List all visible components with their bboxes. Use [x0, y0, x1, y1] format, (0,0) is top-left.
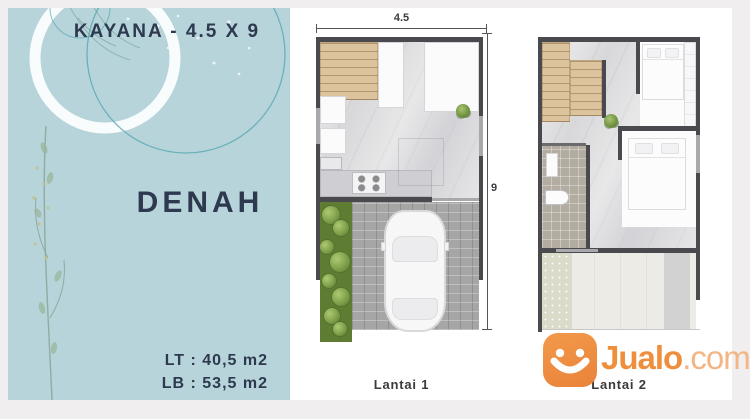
sink-icon	[546, 153, 558, 177]
wall	[316, 202, 320, 278]
wall	[538, 37, 700, 42]
bathroom-wall	[542, 143, 586, 146]
balcony-strip	[664, 253, 690, 329]
toilet-icon	[545, 190, 569, 205]
bathroom-wall	[586, 145, 590, 249]
wall	[696, 252, 700, 300]
window	[316, 108, 320, 144]
wall	[636, 42, 640, 94]
pillow	[665, 48, 679, 58]
window	[696, 135, 700, 173]
denah-heading: DENAH	[100, 186, 290, 220]
wardrobe	[684, 42, 696, 128]
fixture-block	[320, 96, 346, 124]
spec-lb: LB : 53,5 m2	[100, 375, 268, 393]
grass-strip	[320, 202, 352, 342]
bush-icon	[320, 240, 334, 254]
staircase-icon	[570, 60, 602, 116]
bush-icon	[322, 274, 336, 288]
balcony-planter	[542, 253, 572, 329]
smiley-face-icon	[543, 333, 597, 387]
window	[479, 116, 483, 156]
sliding-door	[432, 198, 479, 201]
dimension-line-width	[316, 28, 487, 29]
jualo-smiley-logo	[543, 333, 597, 387]
car-windshield	[392, 236, 438, 262]
plant-icon	[456, 104, 470, 118]
dim-tick	[486, 24, 487, 33]
dim-tick	[482, 329, 492, 330]
bush-icon	[330, 252, 350, 272]
dimension-label-width: 4.5	[316, 12, 487, 24]
bench-seat	[424, 42, 479, 112]
plan-edge	[542, 329, 700, 330]
page-title: KAYANA - 4.5 X 9	[58, 21, 276, 43]
wall	[479, 202, 483, 278]
car-rear-window	[392, 298, 438, 320]
spec-lt: LT : 40,5 m2	[100, 352, 268, 370]
bush-icon	[332, 288, 350, 306]
wall	[618, 126, 700, 131]
dimension-label-height: 9	[491, 182, 497, 194]
dining-table-outline	[398, 138, 444, 186]
bush-icon	[333, 220, 349, 236]
bed-icon	[628, 138, 686, 210]
dim-tick	[316, 24, 317, 33]
kitchen-sink-icon	[320, 157, 342, 170]
pillow	[647, 48, 661, 58]
plan-label-lantai-1: Lantai 1	[316, 377, 487, 392]
bush-icon	[333, 322, 347, 336]
wall	[618, 126, 622, 160]
fixture-block	[320, 128, 346, 154]
car-mirror	[381, 242, 386, 251]
brand-name: Jualo	[601, 339, 682, 376]
pillow	[661, 143, 679, 154]
staircase-icon	[542, 42, 570, 122]
wall	[316, 37, 483, 42]
bed-icon	[642, 44, 684, 100]
jualo-brand-text: Jualo.com	[601, 334, 750, 382]
car-topview-icon	[384, 210, 446, 332]
brand-suffix: .com	[682, 339, 750, 376]
stove-icon	[352, 172, 386, 194]
sliding-door	[556, 249, 598, 252]
dimension-line-height	[487, 33, 488, 330]
cabinet	[378, 42, 404, 108]
car-mirror	[444, 242, 449, 251]
listing-image: KAYANA - 4.5 X 9 DENAH LT : 40,5 m2 LB :…	[0, 0, 750, 419]
pillow	[635, 143, 653, 154]
plant-icon	[604, 114, 618, 128]
staircase-icon	[320, 42, 378, 100]
sidebar: KAYANA - 4.5 X 9 DENAH LT : 40,5 m2 LB :…	[8, 8, 290, 400]
dim-tick	[482, 33, 492, 34]
stair-rail-wall	[602, 60, 606, 118]
